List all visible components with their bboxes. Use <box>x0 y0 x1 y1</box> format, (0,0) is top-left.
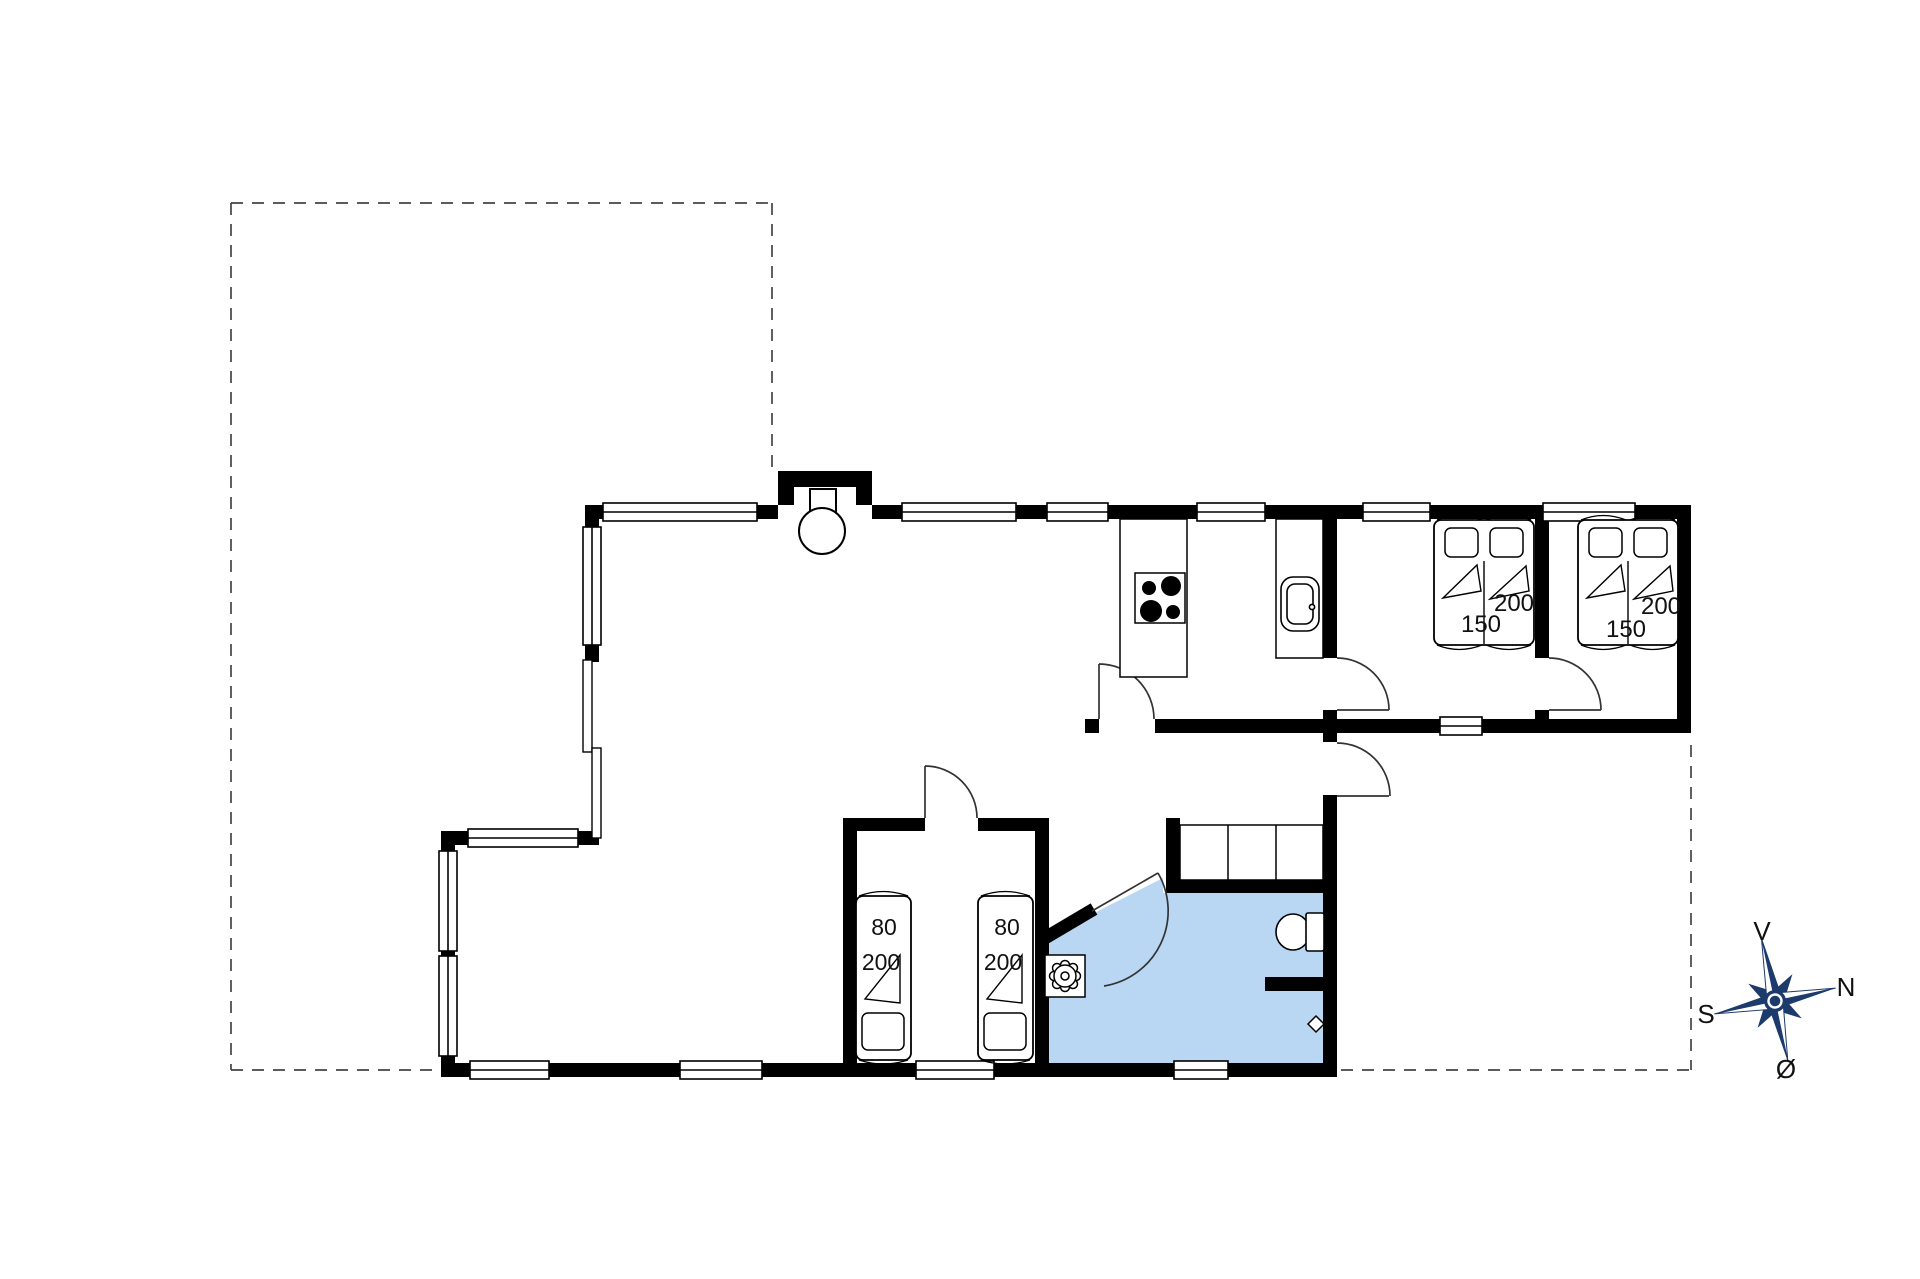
sink-icon <box>1281 577 1319 631</box>
double-bed: 150 200 <box>1434 516 1534 650</box>
bed-length-label: 200 <box>984 949 1022 975</box>
compass-rose: V N S Ø <box>1697 916 1855 1084</box>
compass-label-s: S <box>1697 999 1714 1029</box>
single-bed: 80 200 <box>856 892 911 1065</box>
bed-length-label: 200 <box>862 949 900 975</box>
shower-drain-icon <box>1050 961 1081 992</box>
door-openings <box>925 658 1550 832</box>
bed-width-label: 80 <box>871 914 897 940</box>
bed-width-label: 80 <box>994 914 1020 940</box>
single-bed: 80 200 <box>978 892 1033 1065</box>
toilet-icon <box>1276 913 1324 951</box>
fireplace-icon <box>799 489 845 554</box>
double-bed: 150 200 <box>1578 516 1681 650</box>
bedroom2-door <box>1549 658 1601 710</box>
single-room-door <box>925 766 977 818</box>
compass-label-v: V <box>1753 916 1771 946</box>
compass-label-o: Ø <box>1776 1054 1796 1084</box>
sliding-door <box>583 660 601 838</box>
compass-label-n: N <box>1837 972 1856 1002</box>
bed-width-label: 150 <box>1606 616 1646 643</box>
shower-icon <box>1045 955 1085 997</box>
floor-plan-page: 150 200 150 200 80 200 80 200 <box>0 0 1920 1279</box>
bed-length-label: 200 <box>1494 590 1534 617</box>
bedroom1-door <box>1337 658 1389 710</box>
stove-icon <box>1135 573 1185 623</box>
floor-plan: 150 200 150 200 80 200 80 200 <box>0 0 1920 1279</box>
entrance-door <box>1337 743 1390 796</box>
wardrobe <box>1180 825 1323 880</box>
bed-length-label: 200 <box>1641 593 1681 620</box>
